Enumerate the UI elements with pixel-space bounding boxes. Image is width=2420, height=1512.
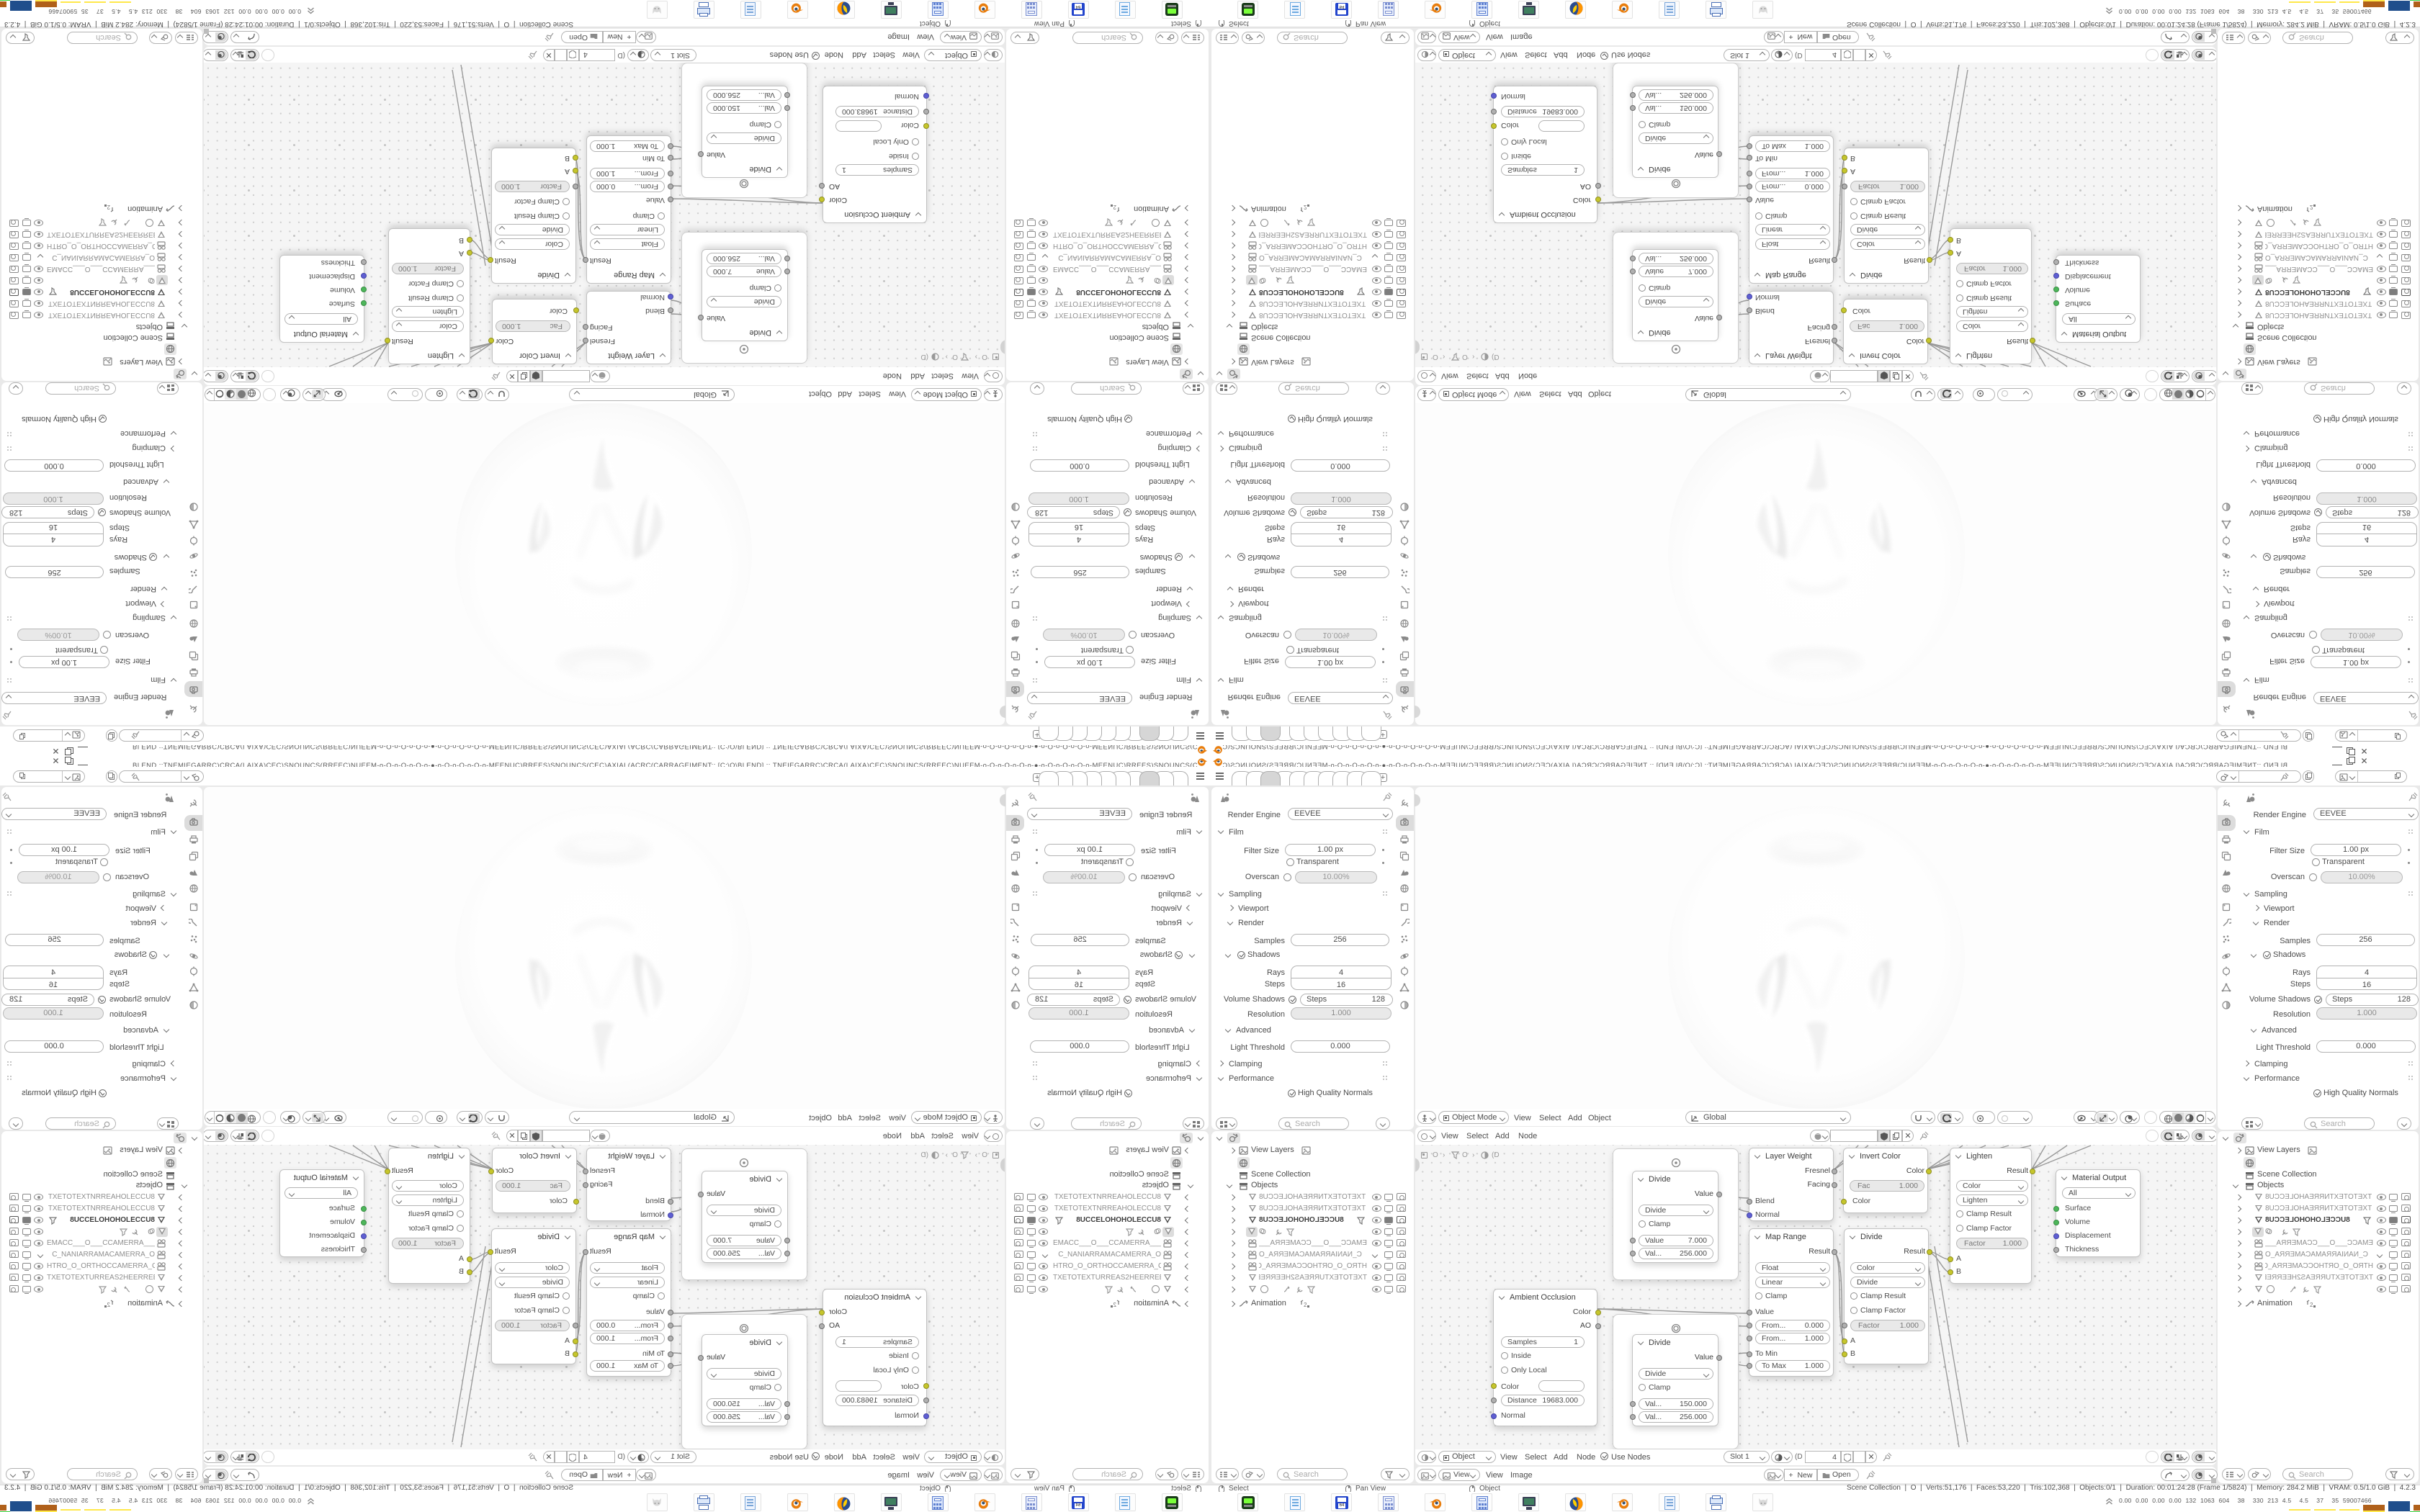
svg-text:2: 2 [107, 204, 110, 210]
svg-text:2: 2 [1304, 204, 1307, 210]
svg-text:2: 2 [1113, 204, 1116, 210]
svg-text:2: 2 [2310, 204, 2313, 210]
svg-text:2: 2 [2310, 1302, 2313, 1308]
svg-text:2: 2 [1113, 1302, 1116, 1308]
svg-text:2: 2 [1304, 1302, 1307, 1308]
svg-text:2: 2 [107, 1302, 110, 1308]
